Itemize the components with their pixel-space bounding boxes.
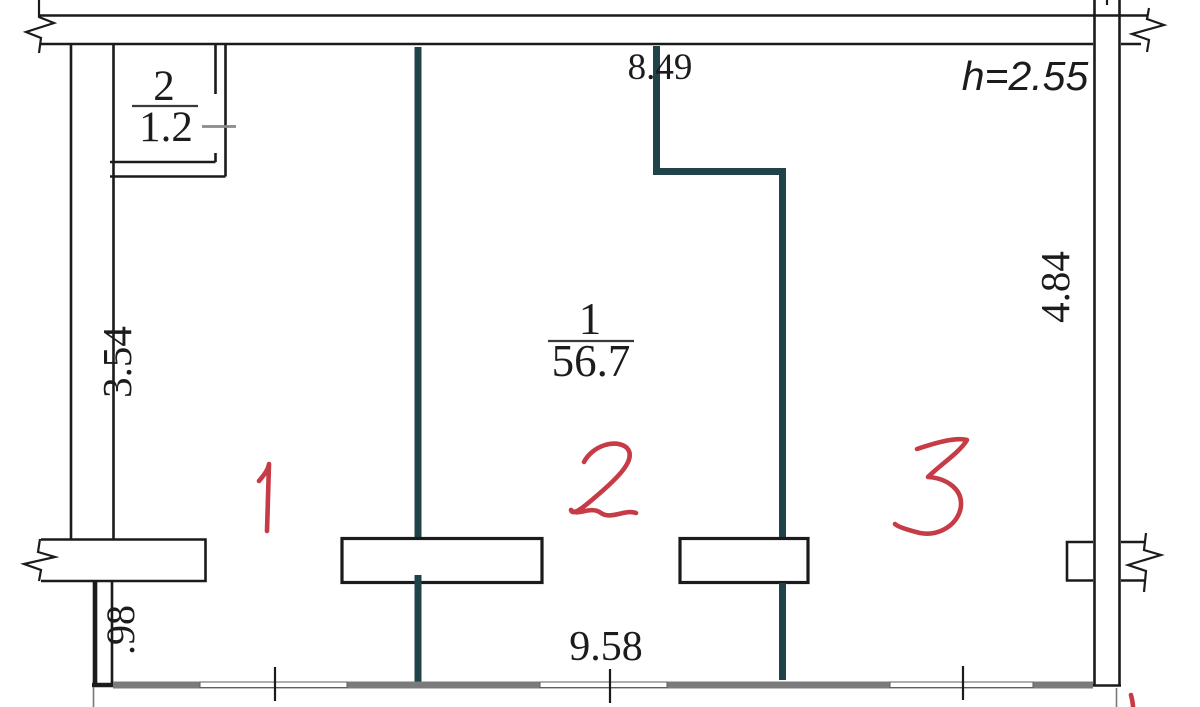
floorplan-canvas: 8.49 h=2.55 3.54 4.84 .98 9.58 2 1.2 1 5…	[0, 0, 1200, 707]
handwritten-corner-mark	[1131, 695, 1133, 707]
closet-room-area: 1.2	[139, 104, 193, 151]
dimension-ceiling-height: h=2.55	[962, 53, 1089, 99]
window-slot-3	[890, 682, 1033, 688]
window-slot-1	[200, 682, 347, 688]
break-symbol-bottom-left	[24, 539, 55, 581]
main-room-area: 56.7	[552, 336, 631, 386]
dimension-right-wall: 4.84	[1032, 251, 1078, 323]
handwritten-zone-3	[895, 439, 967, 533]
bottom-window-line	[113, 666, 1093, 703]
window-box-2	[680, 539, 808, 583]
window-boxes	[342, 539, 808, 583]
partition-2	[657, 46, 783, 538]
handwritten-zone-2	[571, 444, 636, 516]
right-junction-left-stub	[1067, 542, 1093, 581]
right-junction	[1067, 533, 1161, 592]
dimension-top-width: 8.49	[628, 47, 693, 88]
floorplan-drawing: 8.49 h=2.55 3.54 4.84 .98 9.58 2 1.2 1 5…	[0, 0, 1200, 707]
window-slot-2	[540, 682, 667, 688]
room-labels: 2 1.2 1 56.7	[132, 63, 634, 386]
dimension-left-wall: 3.54	[94, 326, 140, 398]
partition-walls	[418, 46, 783, 538]
handwritten-zone-1	[259, 464, 269, 531]
left-junction-band	[41, 540, 206, 582]
window-box-1	[342, 539, 542, 583]
dimension-bottom-width: 9.58	[569, 624, 643, 670]
dimension-lower-left-wall: .98	[98, 605, 143, 655]
closet-room-number: 2	[153, 63, 175, 110]
